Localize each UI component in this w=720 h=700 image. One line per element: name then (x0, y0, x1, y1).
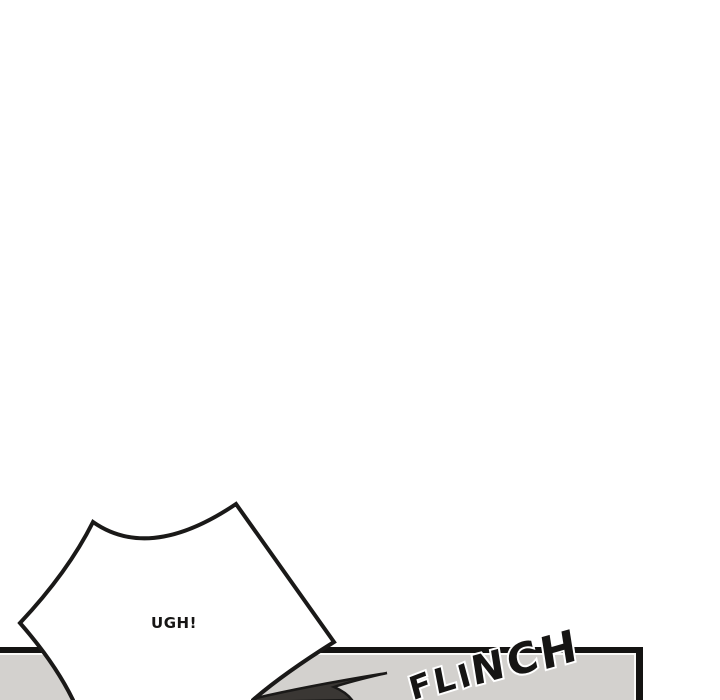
sfx-letter: H (537, 623, 582, 678)
speech-bubble-shape (20, 504, 334, 700)
webtoon-page: UGH! FLINCH (0, 0, 720, 700)
comic-art-layer (0, 0, 720, 700)
speech-bubble-text: UGH! (148, 614, 200, 632)
